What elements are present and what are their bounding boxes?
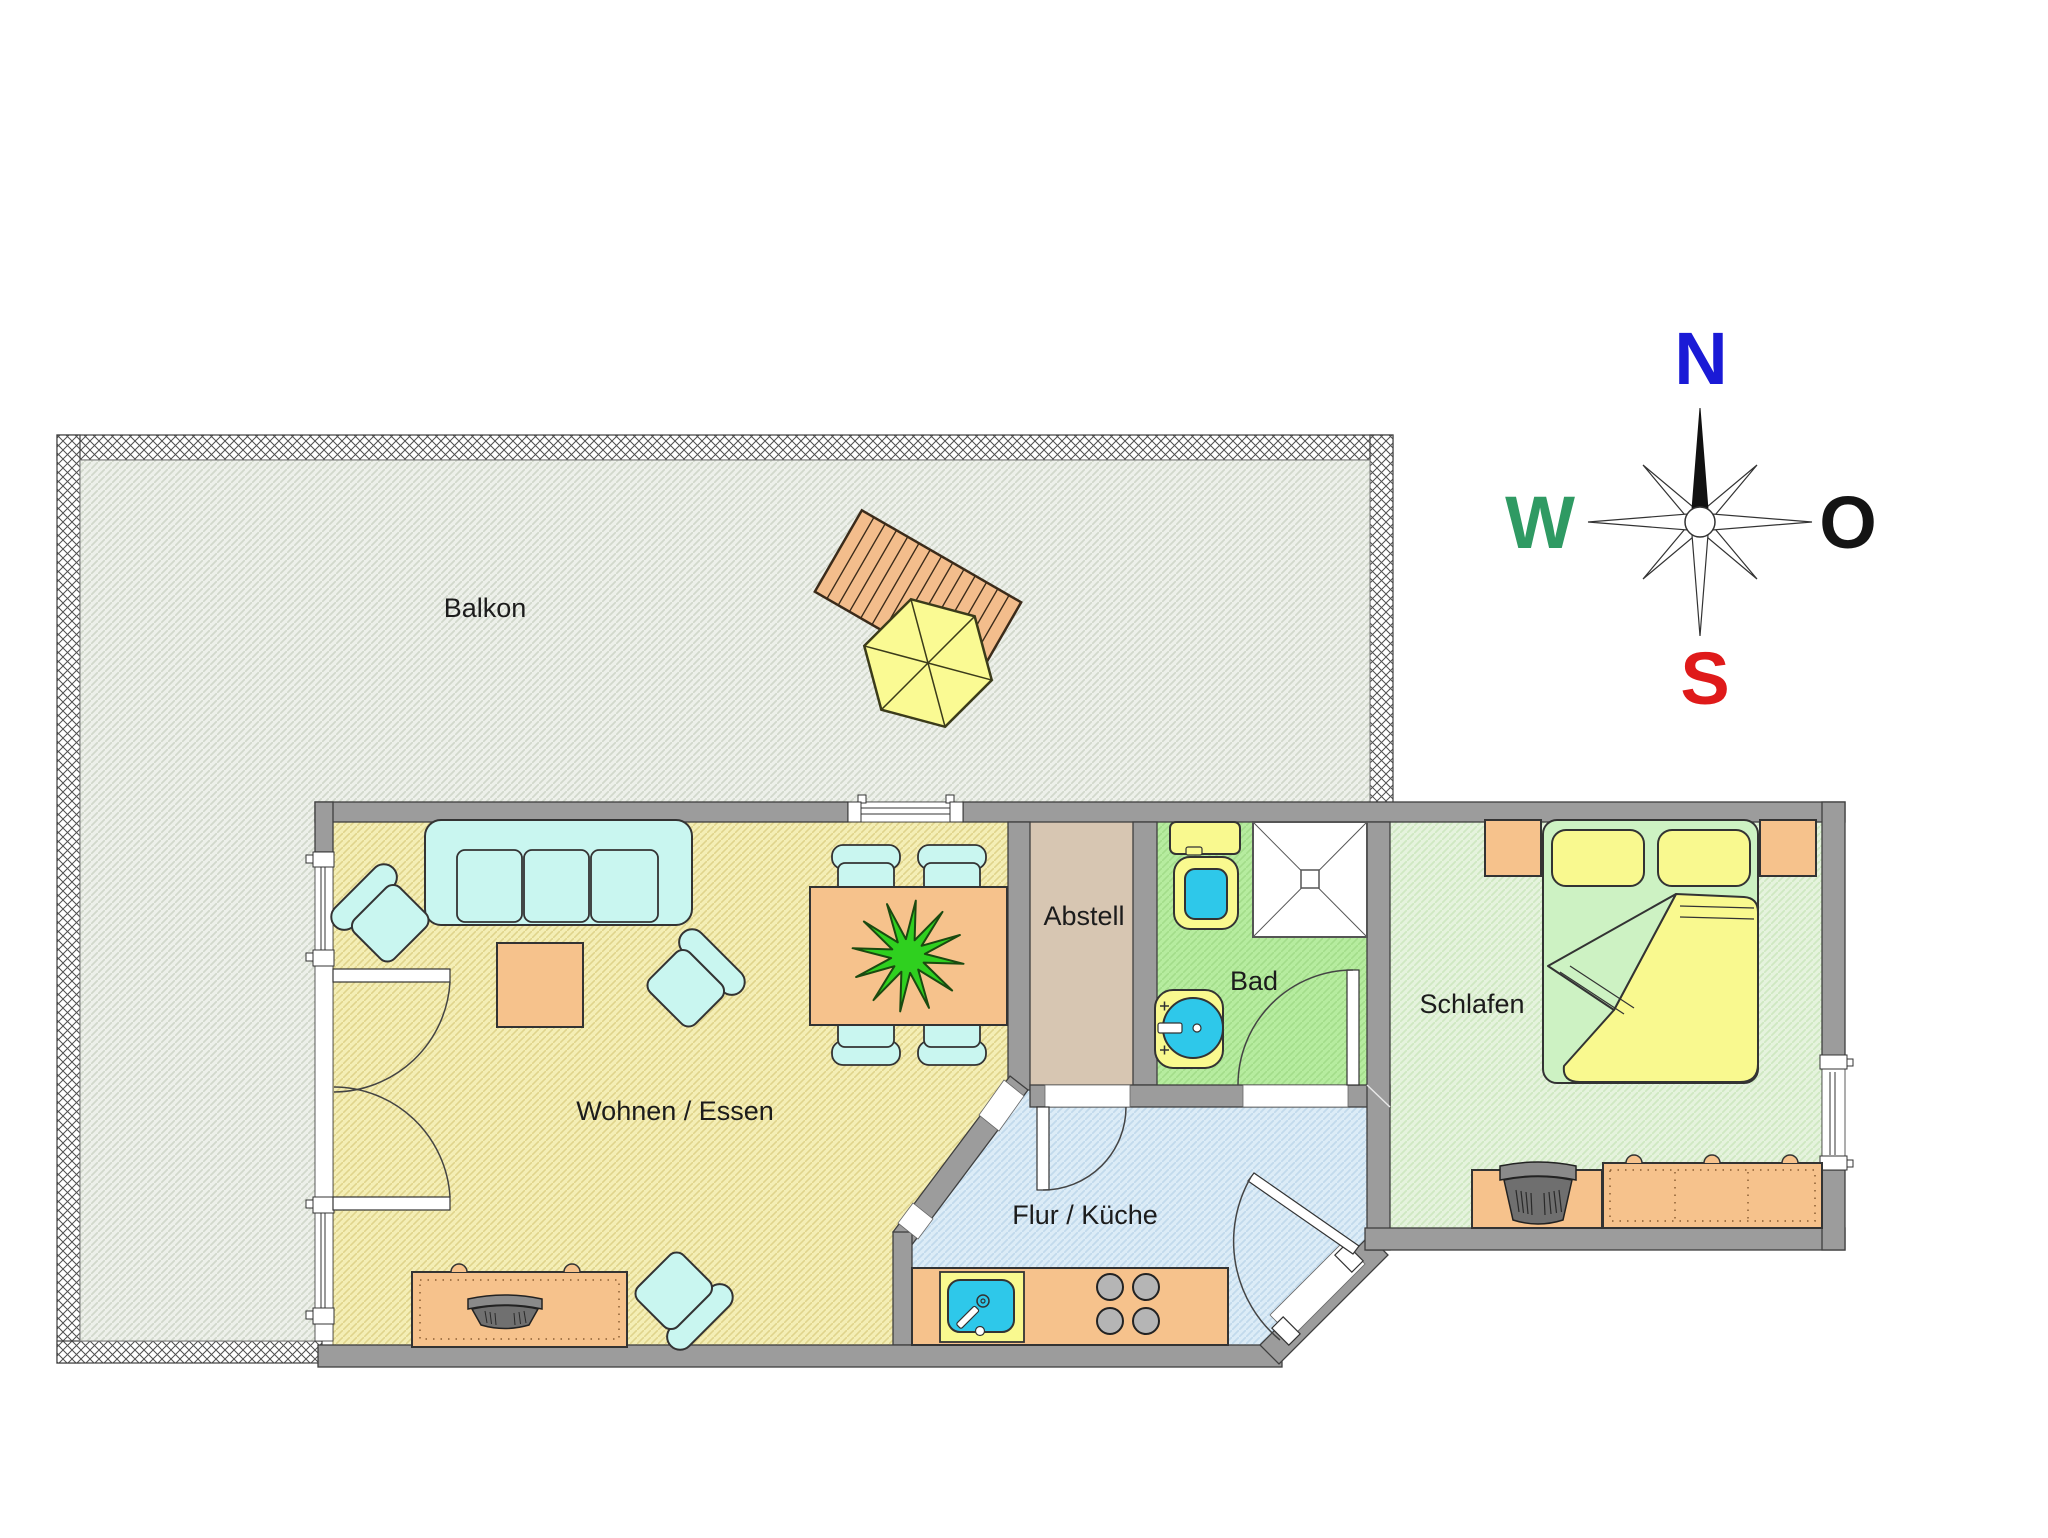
dresser: [1603, 1155, 1822, 1228]
nightstand-right: [1760, 820, 1816, 876]
compass-needle-north: [1691, 408, 1709, 522]
storage-room-floor: [1030, 822, 1133, 1085]
compass-label-north: N: [1674, 317, 1727, 400]
floor-plan-canvas: N W O S Balkon Wohnen / Essen Abstell Ba…: [0, 0, 2048, 1538]
wall-kitchen-left: [893, 1232, 912, 1345]
room-label-abstell: Abstell: [1043, 901, 1124, 931]
kitchen-counter: [912, 1268, 1228, 1345]
pillow-left: [1552, 830, 1644, 886]
room-label-flur-kueche: Flur / Küche: [1012, 1200, 1158, 1230]
double-bed: [1543, 820, 1758, 1083]
pillow-right: [1658, 830, 1750, 886]
compass-label-east: O: [1819, 481, 1877, 564]
nightstand-left: [1485, 820, 1541, 876]
room-label-bad: Bad: [1230, 966, 1278, 996]
opening-storage-door: [1045, 1085, 1130, 1107]
room-label-balkon: Balkon: [444, 593, 527, 623]
compass-hub: [1685, 507, 1715, 537]
wall-living-right: [1008, 822, 1030, 1090]
coffee-table: [497, 943, 583, 1027]
compass-label-west: W: [1505, 481, 1575, 564]
compass-spike-east: [1700, 513, 1812, 531]
compass-spike-south: [1691, 522, 1709, 636]
room-label-wohnen-essen: Wohnen / Essen: [576, 1096, 774, 1126]
floor-plan-page: N W O S Balkon Wohnen / Essen Abstell Ba…: [0, 0, 2048, 1538]
wall-bedroom-right-bottom: [1822, 1170, 1845, 1250]
wall-corner-post: [315, 802, 333, 852]
wall-bedroom-right-top: [1822, 802, 1845, 1057]
bedroom-right-window: [1820, 1055, 1853, 1170]
tv-bedroom: [1500, 1162, 1576, 1224]
wall-bedroom-bottom: [1365, 1228, 1845, 1250]
sideboard: [412, 1264, 627, 1347]
compass-rose: N W O S: [1505, 317, 1877, 720]
toilet: [1170, 822, 1240, 929]
wall-storage-right: [1133, 822, 1157, 1085]
sofa: [425, 820, 692, 925]
room-label-schlafen: Schlafen: [1419, 989, 1524, 1019]
wall-bath-bedroom: [1367, 822, 1390, 1250]
compass-label-south: S: [1680, 637, 1729, 720]
opening-bath-door: [1243, 1085, 1348, 1107]
wall-bottom-living: [318, 1345, 1282, 1367]
washbasin: [1155, 990, 1223, 1068]
tv-stand-bedroom: [1472, 1162, 1602, 1228]
shower: [1253, 822, 1367, 937]
compass-spike-west: [1588, 513, 1700, 531]
